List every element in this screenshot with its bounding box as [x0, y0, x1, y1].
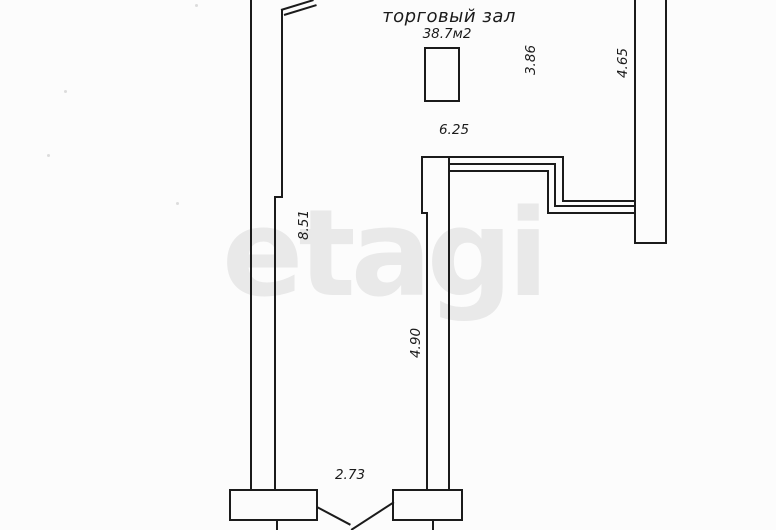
dim-height-inner-right: 3.86: [522, 40, 540, 80]
scan-speck: [64, 90, 67, 93]
footing-right-stub-line: [432, 519, 434, 530]
window-line-1-top: [421, 156, 564, 158]
dim-width-top: 6.25: [424, 121, 484, 139]
room-title: торговый зал: [349, 8, 549, 26]
window-line-1-bottom: [562, 200, 636, 202]
left-wall-inner-upper-line: [281, 10, 283, 198]
etagi-watermark: etagi: [222, 195, 544, 315]
right-wall-left-line: [634, 0, 636, 244]
middle-wall-left-lower-line: [426, 212, 428, 490]
window-line-2-top: [449, 163, 556, 165]
window-line-2-bottom: [554, 205, 636, 207]
footing-left-stub-line: [276, 519, 278, 530]
dim-height-right-wall: 4.65: [614, 43, 632, 83]
window-line-3-bottom: [547, 212, 636, 214]
leader-line-right: [351, 501, 395, 530]
middle-wall-left-upper-line: [421, 157, 423, 214]
column-symbol: [424, 47, 460, 102]
floor-plan-canvas: etagi торговый зал 38.7м2 6.25 3.86 4.65…: [0, 0, 776, 530]
scan-speck: [176, 202, 179, 205]
scan-speck: [47, 154, 50, 157]
window-line-1-drop: [562, 156, 564, 202]
dim-height-middle-wall: 4.90: [407, 323, 425, 363]
left-wall-inner-lower-line: [274, 196, 276, 490]
dim-height-left-wall: 8.51: [295, 205, 313, 245]
left-wall-outer-line: [250, 0, 252, 490]
footing-right: [392, 489, 463, 521]
leader-line-left: [317, 506, 351, 525]
dim-width-bottom: 2.73: [320, 466, 380, 484]
window-line-3-drop: [547, 170, 549, 214]
right-wall-right-line: [665, 0, 667, 244]
right-wall-bottom-cap: [634, 242, 667, 244]
scan-speck: [195, 4, 198, 7]
window-line-3-top: [449, 170, 549, 172]
room-area: 38.7м2: [347, 25, 547, 43]
footing-left: [229, 489, 318, 521]
middle-wall-right-line: [448, 157, 450, 490]
window-line-2-drop: [554, 163, 556, 207]
